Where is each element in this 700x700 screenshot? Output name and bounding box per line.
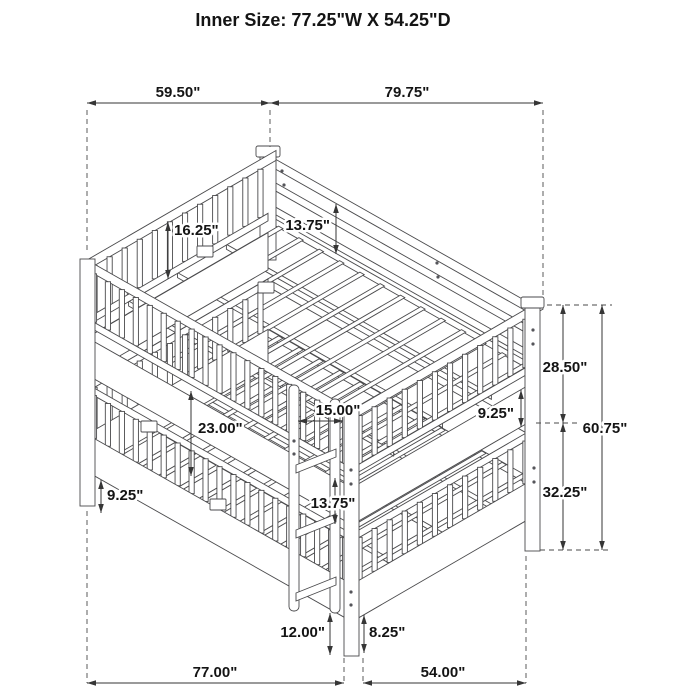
dim-label-underbed-clearance: 8.25" bbox=[369, 624, 405, 641]
bed-slat bbox=[478, 467, 483, 510]
bed-slat bbox=[105, 404, 110, 447]
diagram-canvas: Inner Size: 77.25"W X 54.25"D 59.50" 79.… bbox=[0, 0, 700, 700]
arrowhead bbox=[98, 480, 104, 489]
arrowhead bbox=[270, 100, 279, 106]
bed-slat bbox=[447, 363, 452, 411]
bed-slat bbox=[105, 282, 110, 330]
bed-post-left bbox=[80, 259, 95, 506]
bed-slat bbox=[119, 411, 124, 454]
dim-label-lower-section-height: 32.25" bbox=[543, 484, 588, 501]
bed-slat bbox=[182, 335, 187, 378]
ladder-rail bbox=[289, 385, 299, 611]
arrowhead bbox=[98, 504, 104, 513]
bed-slat bbox=[463, 476, 468, 519]
bed-slat bbox=[231, 353, 236, 401]
bed-slat bbox=[463, 354, 468, 402]
dim-label-headboard-rail-to-slats: 16.25" bbox=[174, 222, 219, 239]
arrowhead bbox=[87, 100, 96, 106]
slat-bracket bbox=[141, 421, 157, 432]
arrowhead bbox=[87, 680, 96, 686]
bed-slat bbox=[432, 372, 437, 420]
arrowhead bbox=[333, 204, 339, 213]
bed-slat bbox=[203, 459, 208, 502]
arrowhead bbox=[517, 680, 526, 686]
arrowhead bbox=[560, 541, 566, 550]
bed-slat bbox=[432, 494, 437, 537]
dim-label-top-length: 79.75" bbox=[385, 84, 430, 101]
inner-size-title: Inner Size: 77.25"W X 54.25"D bbox=[195, 10, 450, 30]
slat-bracket bbox=[258, 282, 274, 293]
dim-label-bed-length: 77.00" bbox=[193, 664, 238, 681]
bed-post-right bbox=[525, 300, 540, 551]
arrowhead bbox=[560, 423, 566, 432]
bed-slat bbox=[372, 529, 377, 572]
bed-slat bbox=[203, 337, 208, 385]
bed-slat bbox=[147, 427, 152, 470]
bed-slat bbox=[301, 392, 306, 440]
bed-slat bbox=[402, 511, 407, 554]
bolt-hole bbox=[532, 466, 535, 469]
bed-slat bbox=[175, 443, 180, 486]
bed-slat bbox=[402, 389, 407, 437]
bed-slat bbox=[447, 485, 452, 528]
arrowhead bbox=[534, 100, 543, 106]
bolt-hole bbox=[280, 169, 283, 172]
bed-post-front bbox=[344, 408, 359, 656]
arrowhead bbox=[335, 680, 344, 686]
bed-slat bbox=[133, 298, 138, 346]
dim-label-bed-width: 54.00" bbox=[421, 664, 466, 681]
bed-slat bbox=[508, 450, 513, 493]
bed-slat bbox=[417, 381, 422, 429]
bolt-hole bbox=[292, 439, 295, 442]
arrowhead bbox=[560, 414, 566, 423]
bolt-hole bbox=[282, 183, 285, 186]
bed-slat bbox=[478, 346, 483, 394]
dim-label-lower-side-rail: 9.25" bbox=[107, 487, 143, 504]
bed-slat bbox=[417, 502, 422, 545]
dim-label-overall-height: 60.75" bbox=[583, 420, 628, 437]
bolt-hole bbox=[349, 590, 352, 593]
bed-slat bbox=[243, 178, 248, 226]
bed-slat bbox=[387, 520, 392, 563]
bed-slat bbox=[259, 369, 264, 417]
bed-slat bbox=[258, 169, 263, 217]
bed-slat bbox=[493, 459, 498, 502]
bed-slat bbox=[217, 345, 222, 393]
bed-slat bbox=[245, 361, 250, 409]
bed-slat bbox=[493, 337, 498, 385]
bed-slat bbox=[258, 291, 263, 334]
bed-post-cap bbox=[521, 297, 544, 308]
bolt-hole bbox=[531, 328, 534, 331]
dim-label-top-width: 59.50" bbox=[156, 84, 201, 101]
bed-slat bbox=[161, 435, 166, 478]
bolt-hole bbox=[349, 482, 352, 485]
dim-label-upper-section-height: 28.50" bbox=[543, 359, 588, 376]
bed-slat bbox=[243, 300, 248, 343]
bed-slat bbox=[273, 498, 278, 541]
dim-label-ladder-to-post: 15.00" bbox=[316, 402, 361, 419]
slat-bracket bbox=[197, 246, 213, 257]
dim-label-ladder-floor-height: 12.00" bbox=[280, 624, 325, 641]
bolt-hole bbox=[349, 603, 352, 606]
bunk-bed-dimension-diagram: Inner Size: 77.25"W X 54.25"D 59.50" 79.… bbox=[0, 0, 700, 700]
bed-slat bbox=[133, 419, 138, 462]
arrowhead bbox=[327, 646, 333, 655]
bolt-hole bbox=[292, 452, 295, 455]
dim-label-bunk-clearance: 23.00" bbox=[198, 420, 243, 437]
bed-slat bbox=[119, 290, 124, 338]
bolt-hole bbox=[531, 342, 534, 345]
bed-slat bbox=[245, 482, 250, 525]
bolt-hole bbox=[532, 480, 535, 483]
bolt-hole bbox=[436, 275, 439, 278]
arrowhead bbox=[599, 541, 605, 550]
arrowhead bbox=[599, 305, 605, 314]
slat-bracket bbox=[210, 499, 226, 510]
bed-slat bbox=[372, 407, 377, 455]
arrowhead bbox=[361, 644, 367, 653]
bed-slat bbox=[147, 305, 152, 353]
bed-slat bbox=[189, 329, 194, 377]
bed-slat bbox=[273, 376, 278, 424]
bed-slat bbox=[387, 398, 392, 446]
dim-label-upper-side-rail: 9.25" bbox=[478, 405, 514, 422]
bed-slat bbox=[152, 231, 157, 279]
bed-slat bbox=[231, 475, 236, 518]
dim-label-upper-guard-height: 13.75" bbox=[285, 217, 330, 234]
bed-slat bbox=[175, 321, 180, 369]
bolt-hole bbox=[435, 261, 438, 264]
dim-label-lower-guard-height: 13.75" bbox=[311, 495, 356, 512]
bed-slat bbox=[137, 239, 142, 287]
bed-slat bbox=[508, 328, 513, 376]
arrowhead bbox=[327, 613, 333, 622]
arrowhead bbox=[560, 305, 566, 314]
arrowhead bbox=[261, 100, 270, 106]
arrowhead bbox=[363, 680, 372, 686]
bed-slat bbox=[259, 490, 264, 533]
bed-slat bbox=[228, 187, 233, 235]
bed-slat bbox=[161, 313, 166, 361]
bolt-hole bbox=[349, 468, 352, 471]
